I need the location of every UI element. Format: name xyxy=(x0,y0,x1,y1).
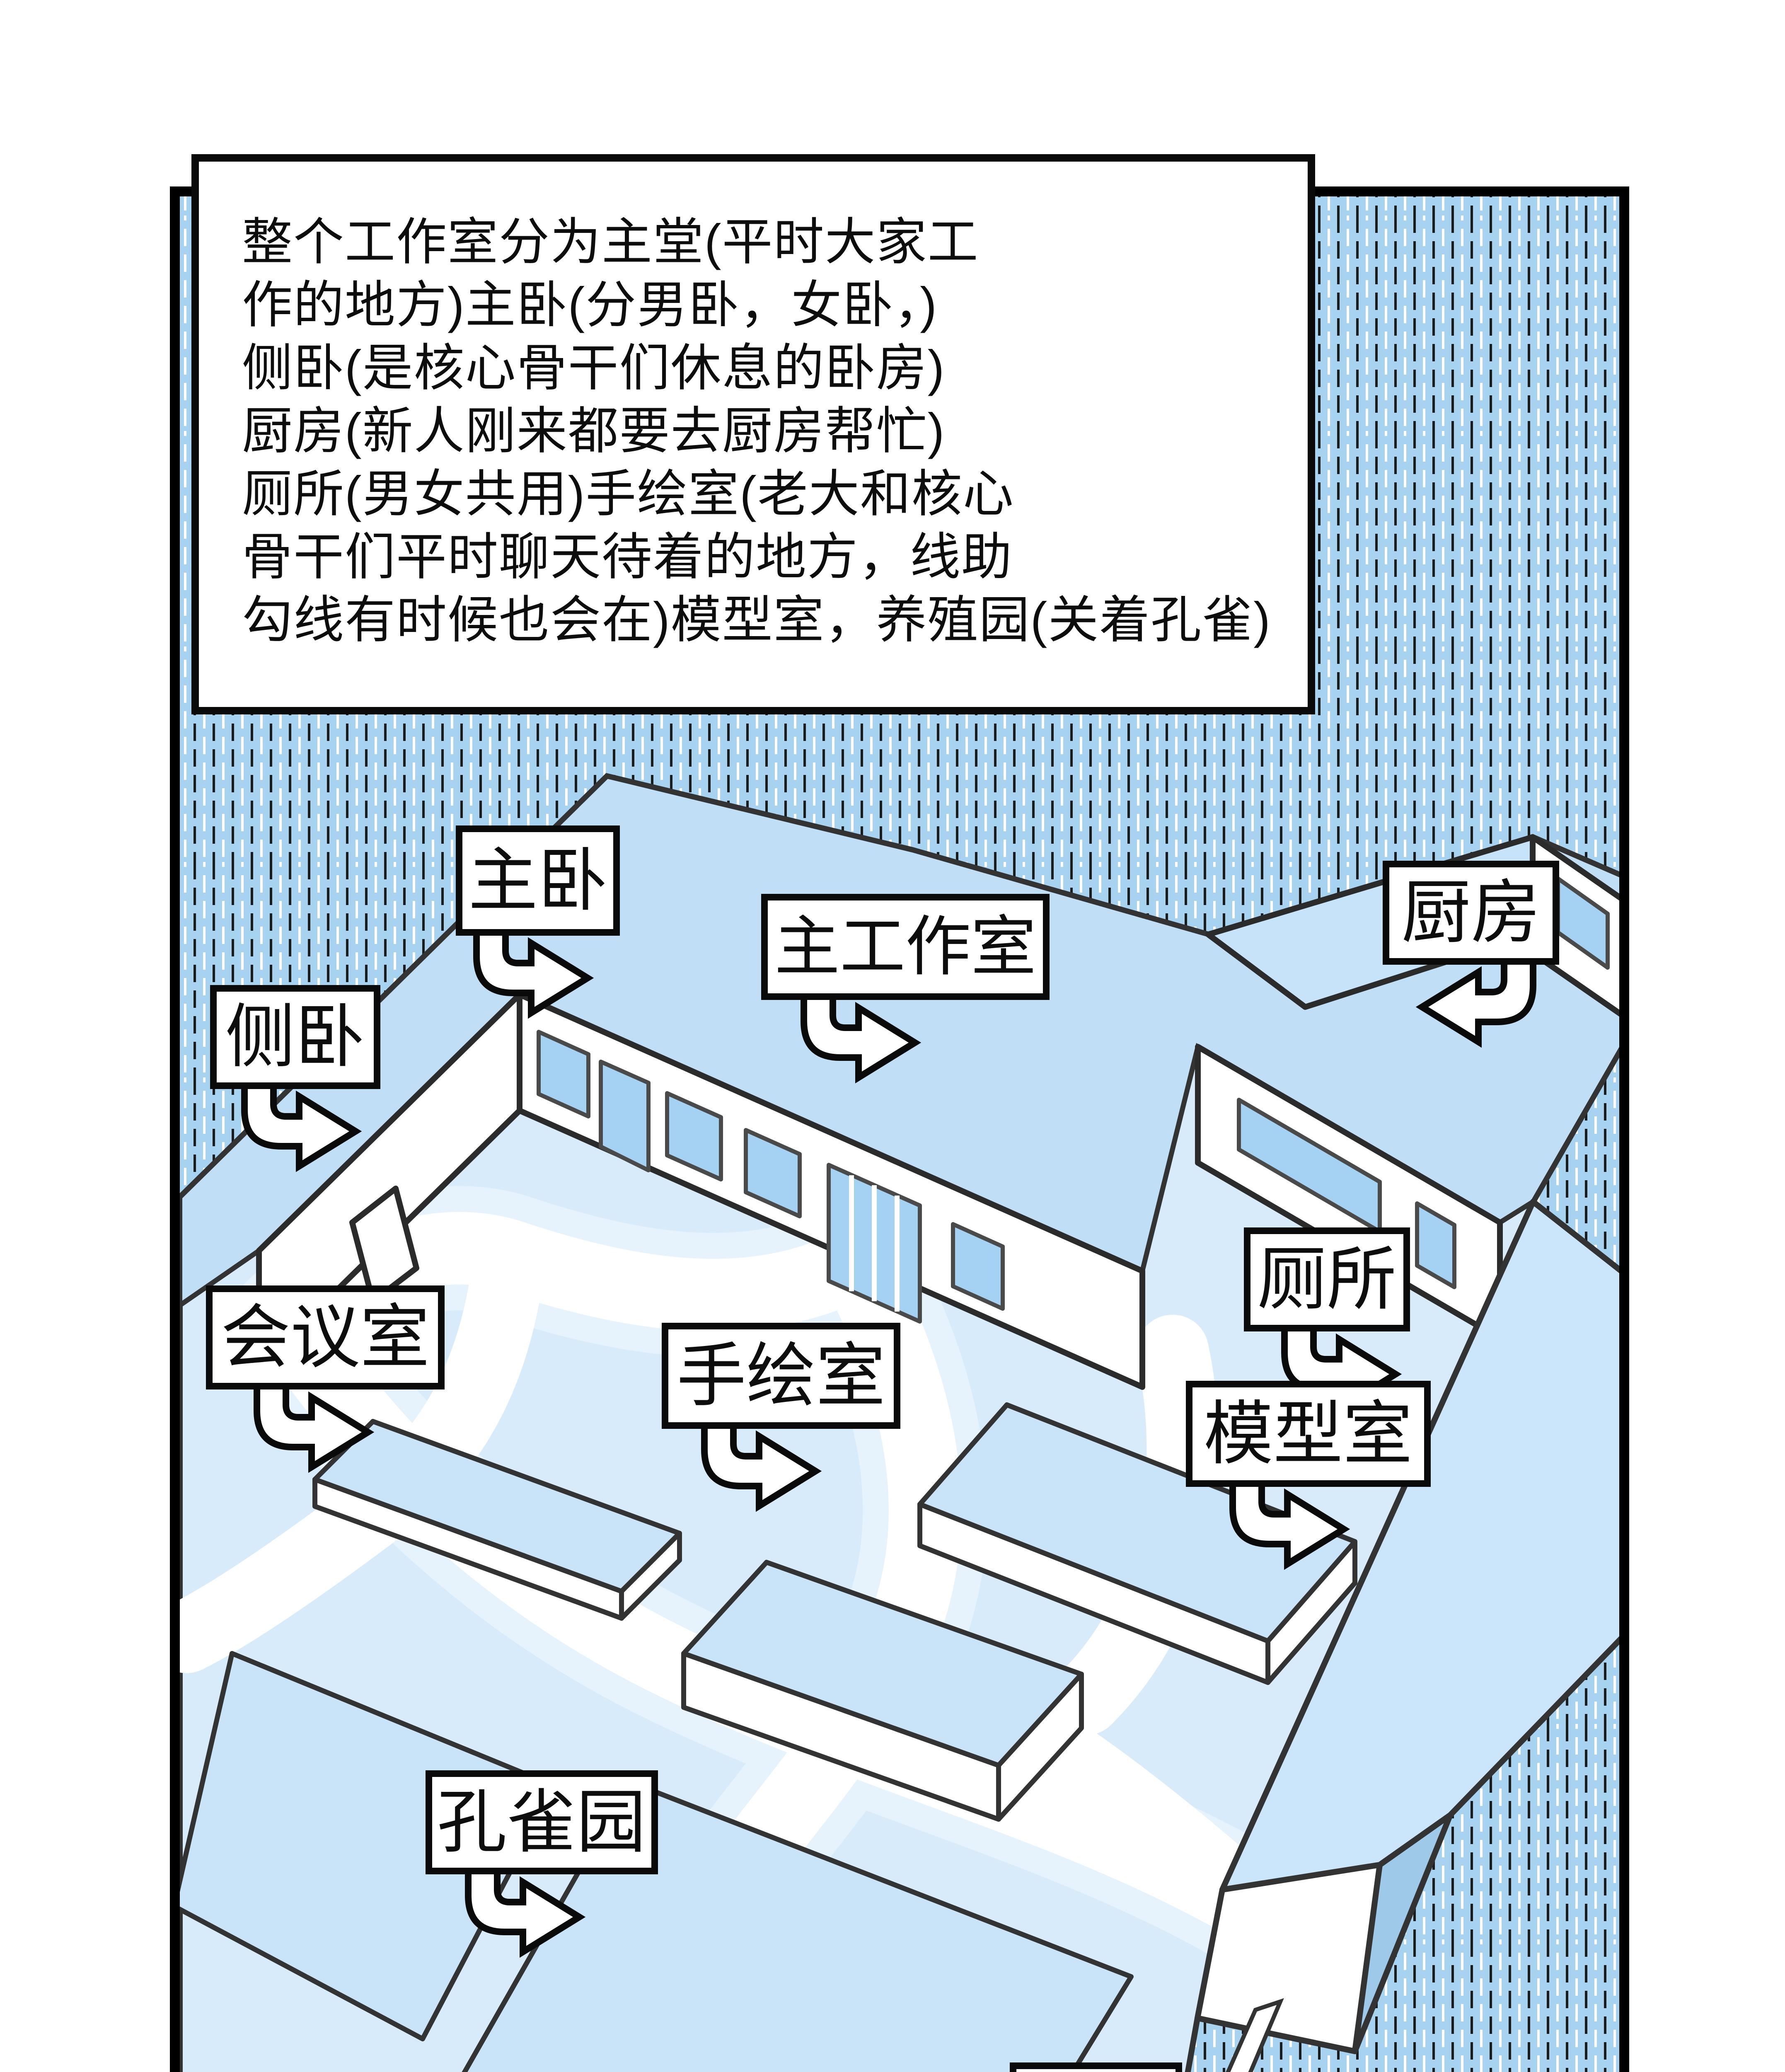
description-line: 勾线有时候也会在)模型室，养殖园(关着孔雀) xyxy=(242,588,1283,651)
svg-text:厕所: 厕所 xyxy=(1257,1240,1396,1318)
description-line: 侧卧(是核心骨干们休息的卧房) xyxy=(242,336,1283,399)
svg-text:主工作室: 主工作室 xyxy=(774,910,1036,983)
svg-text:厨房: 厨房 xyxy=(1401,874,1541,951)
label-main-gate: 大门 xyxy=(1013,2066,1179,2072)
description-line: 整个工作室分为主堂(平时大家工 xyxy=(242,211,1283,274)
svg-text:孔雀园: 孔雀园 xyxy=(437,1783,646,1861)
description-line: 厕所(男女共用)手绘室(老大和核心 xyxy=(242,462,1283,525)
svg-text:手绘室: 手绘室 xyxy=(677,1337,885,1415)
gate-end-face xyxy=(1197,1865,1380,2051)
description-line: 作的地方)主卧(分男卧，女卧，) xyxy=(242,274,1283,336)
description-line: 骨干们平时聊天待着的地方，线助 xyxy=(242,525,1283,588)
svg-text:侧卧: 侧卧 xyxy=(225,998,365,1076)
comic-page: 主卧 主工作室 厨房 侧卧 厕所 xyxy=(0,0,1785,2072)
svg-text:主卧: 主卧 xyxy=(468,842,607,920)
svg-text:模型室: 模型室 xyxy=(1204,1395,1413,1473)
description-box: 整个工作室分为主堂(平时大家工 作的地方)主卧(分男卧，女卧，) 侧卧(是核心骨… xyxy=(191,154,1315,714)
svg-text:会议室: 会议室 xyxy=(221,1298,430,1376)
description-line: 厨房(新人刚来都要去厨房帮忙) xyxy=(242,399,1283,462)
